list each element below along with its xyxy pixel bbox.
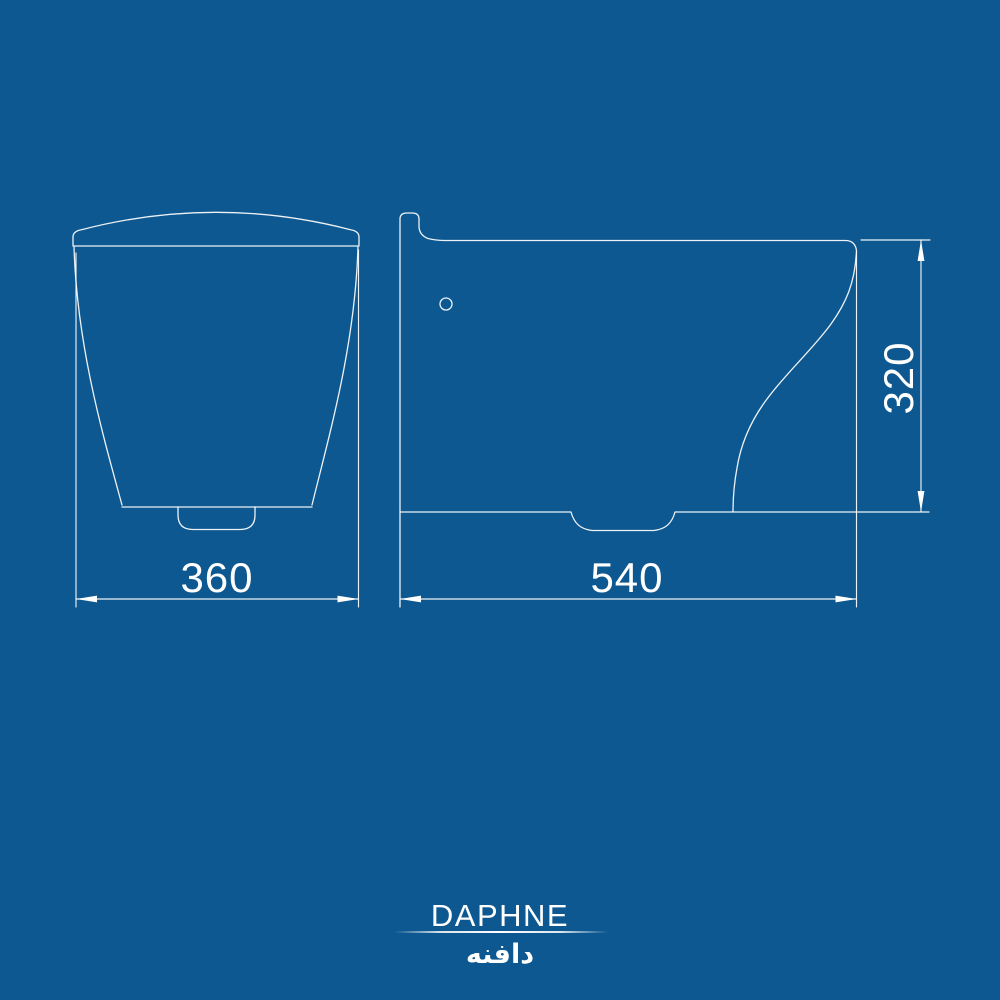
technical-drawing <box>0 0 1000 1000</box>
front-outlet <box>178 507 255 530</box>
arrowhead-top <box>918 240 925 261</box>
side-view-drawing <box>400 213 929 607</box>
front-view-drawing <box>73 212 359 529</box>
front-lid-outline <box>73 212 359 246</box>
arrowhead-left <box>76 596 97 603</box>
front-body-right-edge <box>312 247 358 505</box>
front-body-left-edge <box>74 247 122 505</box>
arrowhead-left <box>400 596 421 603</box>
arrowhead-bottom <box>918 491 925 512</box>
arrowhead-right <box>338 596 359 603</box>
side-depth-label: 540 <box>527 552 727 604</box>
side-fixing-hole-icon <box>440 298 452 310</box>
brand-divider <box>394 931 608 933</box>
diagram-canvas: 360 540 320 DAPHNE دافنه <box>0 0 1000 1000</box>
front-width-label: 360 <box>117 552 317 604</box>
brand-name-latin: DAPHNE <box>0 897 1000 935</box>
brand-name-persian: دافنه <box>0 936 1000 974</box>
side-body-outline <box>400 213 857 607</box>
arrowhead-right <box>836 596 857 603</box>
side-height-label: 320 <box>877 318 921 438</box>
side-bottom-edge <box>400 512 929 531</box>
